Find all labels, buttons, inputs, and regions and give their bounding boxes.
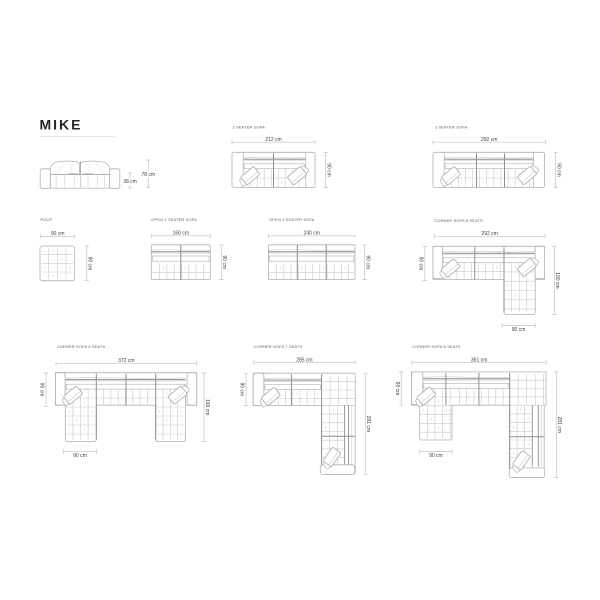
svg-text:CORNER SOFA 8 SEATS: CORNER SOFA 8 SEATS bbox=[412, 344, 461, 349]
svg-text:90 cm: 90 cm bbox=[325, 163, 331, 177]
svg-text:212 cm: 212 cm bbox=[265, 137, 281, 143]
svg-text:90 cm: 90 cm bbox=[51, 231, 65, 237]
svg-text:281 cm: 281 cm bbox=[556, 416, 562, 432]
svg-text:190 cm: 190 cm bbox=[204, 399, 210, 415]
svg-text:78 cm: 78 cm bbox=[141, 172, 155, 178]
svg-text:90 cm: 90 cm bbox=[364, 255, 370, 269]
svg-text:OPEN 3 SEATER SOFA: OPEN 3 SEATER SOFA bbox=[269, 217, 315, 222]
svg-text:MIKE: MIKE bbox=[40, 117, 83, 133]
svg-text:372 cm: 372 cm bbox=[118, 358, 134, 364]
svg-text:OPEN 2 SEATER SOFA: OPEN 2 SEATER SOFA bbox=[151, 217, 197, 222]
svg-text:90 cm: 90 cm bbox=[429, 453, 443, 459]
svg-text:292 cm: 292 cm bbox=[481, 231, 497, 237]
svg-text:3 SEATER SOFA: 3 SEATER SOFA bbox=[435, 125, 468, 130]
svg-text:90 cm: 90 cm bbox=[73, 453, 87, 459]
svg-text:160 cm: 160 cm bbox=[173, 230, 189, 236]
svg-text:285 cm: 285 cm bbox=[296, 357, 312, 363]
svg-text:190 cm: 190 cm bbox=[554, 272, 560, 288]
svg-text:90 cm: 90 cm bbox=[239, 382, 245, 396]
svg-text:90 cm: 90 cm bbox=[87, 257, 93, 271]
svg-text:CORNER SOFA 7 SEATS: CORNER SOFA 7 SEATS bbox=[254, 344, 303, 349]
svg-text:281 cm: 281 cm bbox=[365, 416, 371, 432]
svg-text:CORNER SOFA 6 SEATS: CORNER SOFA 6 SEATS bbox=[57, 344, 106, 349]
svg-text:POUF: POUF bbox=[41, 217, 53, 222]
svg-text:361 cm: 361 cm bbox=[471, 357, 487, 363]
svg-text:38 cm: 38 cm bbox=[123, 179, 137, 185]
svg-text:90 cm: 90 cm bbox=[512, 327, 526, 333]
svg-text:90 cm: 90 cm bbox=[555, 163, 561, 177]
svg-text:90 cm: 90 cm bbox=[394, 382, 400, 396]
svg-text:90 cm: 90 cm bbox=[39, 383, 45, 397]
svg-text:90 cm: 90 cm bbox=[221, 255, 227, 269]
svg-text:CORNER SOFA 5 SEATS: CORNER SOFA 5 SEATS bbox=[434, 218, 483, 223]
svg-text:90 cm: 90 cm bbox=[418, 257, 424, 271]
svg-text:240 cm: 240 cm bbox=[303, 230, 319, 236]
svg-text:2 SEATER SOFA: 2 SEATER SOFA bbox=[233, 125, 266, 130]
svg-text:292 cm: 292 cm bbox=[481, 137, 497, 143]
